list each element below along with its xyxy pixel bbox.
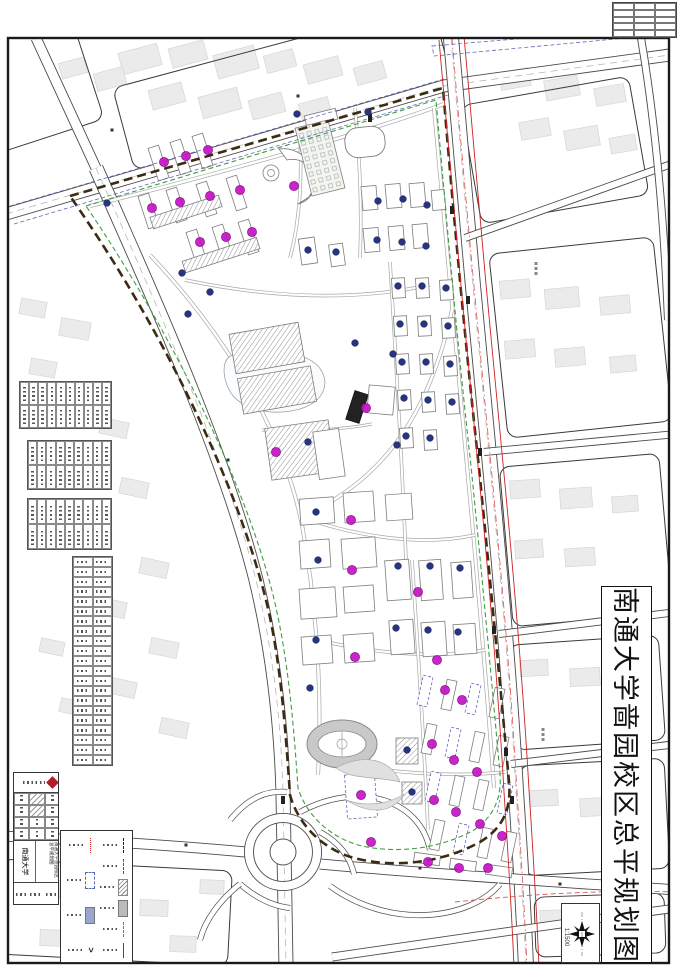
campus-building (473, 779, 489, 810)
magenta-marker-dot (195, 237, 204, 246)
map-mark (419, 867, 422, 870)
magenta-marker-dot (289, 181, 298, 190)
existing-building (148, 82, 186, 110)
project-title: 南通大学啬园校区总平规划图 (36, 841, 60, 882)
green-line-swatch (123, 922, 124, 937)
existing-building (198, 87, 242, 119)
drawing-title-strip: 南通大学啬园校区总平规划图 (601, 586, 652, 963)
blue-marker-dot (421, 321, 428, 328)
blue-marker-dot (419, 283, 426, 290)
existing-building (599, 295, 630, 316)
magenta-marker-dot (235, 185, 244, 194)
map-mark (297, 95, 300, 98)
gate (504, 748, 508, 756)
blue-marker-dot (399, 359, 406, 366)
blue-marker-dot (427, 563, 434, 570)
revision-cell (634, 10, 655, 17)
magenta-marker-dot (205, 191, 214, 200)
campus-building (385, 493, 413, 521)
blue-marker-dot (395, 283, 402, 290)
blue-marker-dot (427, 435, 434, 442)
magenta-marker-dot (449, 755, 458, 764)
blue-marker-dot (393, 625, 400, 632)
blue-marker-dot (313, 509, 320, 516)
blue-marker-dot (315, 557, 322, 564)
existing-building (564, 125, 601, 151)
blue-marker-dot (394, 442, 401, 449)
legend-item-existing-building (100, 898, 128, 918)
gate (492, 626, 496, 634)
magenta-marker-dot (271, 447, 280, 456)
legend-item-planned-building (100, 877, 128, 897)
blue-marker-dot (399, 239, 406, 246)
gate (510, 796, 514, 804)
magenta-marker-dot (350, 652, 359, 661)
revision-cell (634, 17, 655, 24)
legend-item-reserved-land (67, 870, 95, 890)
blue-marker-dot (307, 685, 314, 692)
magenta-marker-dot (451, 807, 460, 816)
existing-building (609, 134, 637, 154)
map-mark (227, 459, 230, 462)
campus-building (388, 225, 405, 250)
road-label-mark (535, 272, 538, 275)
revision-cell (613, 17, 634, 24)
legend-item-entrance: > (67, 940, 95, 960)
magenta-marker-dot (147, 203, 156, 212)
revision-cell (634, 3, 655, 10)
blue-marker-dot (207, 289, 214, 296)
campus-building (469, 731, 485, 762)
magenta-marker-dot (472, 767, 481, 776)
drawing-title: 南通大学啬园校区总平规划图 (608, 587, 647, 963)
existing-building (514, 539, 543, 559)
blue-marker-dot (333, 249, 340, 256)
blue-marker-dot (425, 397, 432, 404)
revision-cell (655, 23, 676, 30)
city-block (489, 237, 672, 438)
blue-marker-dot (179, 270, 186, 277)
existing-building (39, 638, 65, 657)
road-label-mark (542, 733, 545, 736)
revision-table (612, 2, 677, 38)
revision-cell (634, 30, 655, 37)
campus-building (299, 587, 337, 619)
map-mark (111, 129, 114, 132)
blue-marker-dot (404, 747, 411, 754)
magenta-marker-dot (247, 227, 256, 236)
blue-marker-dot (455, 629, 462, 636)
legend-item-campus-wall (100, 940, 128, 960)
legend-item-red-line (100, 856, 128, 876)
existing-building (504, 339, 535, 360)
blue-marker-dot (375, 198, 382, 205)
campus-building (421, 621, 447, 657)
campus-building (445, 727, 461, 758)
existing-building (303, 56, 343, 85)
reserved-land-swatch (85, 872, 95, 889)
magenta-marker-dot (440, 685, 449, 694)
campus-building (465, 683, 481, 714)
title-block-tail (14, 883, 59, 905)
pool-field (344, 125, 387, 159)
red-line (464, 36, 539, 967)
campus-building (343, 585, 375, 613)
blue-marker-dot (352, 340, 359, 347)
existing-building (509, 479, 540, 499)
blue-marker-dot (449, 399, 456, 406)
blue-marker-dot (401, 395, 408, 402)
existing-building (519, 118, 552, 141)
magenta-marker-dot (427, 739, 436, 748)
existing-building (200, 880, 224, 895)
existing-building (93, 66, 127, 91)
magenta-marker-dot (361, 403, 370, 412)
spiral-plaza (263, 165, 279, 181)
legend: > (60, 830, 133, 963)
existing-building (159, 717, 190, 738)
campus-building (477, 827, 493, 858)
road-label-mark (535, 267, 538, 270)
revision-cell (613, 23, 634, 30)
planned-building-swatch (118, 879, 128, 896)
magenta-marker-dot (181, 151, 190, 160)
magenta-marker-dot (346, 515, 355, 524)
existing-building-swatch (118, 900, 128, 917)
blue-marker-dot (423, 359, 430, 366)
blue-marker-dot (425, 627, 432, 634)
campus-building (385, 183, 402, 208)
existing-building (570, 667, 601, 687)
revision-cell (613, 30, 634, 37)
magenta-marker-dot (423, 857, 432, 866)
site-boundary-swatch (123, 838, 124, 853)
existing-building (611, 495, 638, 513)
water-swatch (85, 907, 95, 924)
magenta-marker-dot (454, 863, 463, 872)
magenta-marker-dot (366, 837, 375, 846)
existing-building (149, 637, 180, 658)
existing-building (594, 84, 627, 107)
existing-building (520, 659, 549, 676)
blue-planning-line (432, 30, 626, 56)
blue-planning-line (14, 95, 448, 224)
campus-building (449, 775, 465, 806)
blue-marker-dot (443, 285, 450, 292)
campus-wall-swatch (123, 943, 124, 958)
legend-row2: > (67, 835, 95, 960)
indicator-table-3 (27, 498, 112, 550)
campus-building (441, 679, 457, 710)
legend-row1 (100, 835, 128, 960)
existing-building (554, 347, 585, 368)
client-name: 南通大学 (14, 841, 36, 882)
revision-cell (655, 10, 676, 17)
title-block-names: 南通大学啬园校区总平规划图 南通大学 (14, 841, 59, 883)
magenta-marker-dot (457, 695, 466, 704)
existing-building (499, 279, 530, 300)
blue-marker-dot (305, 247, 312, 254)
existing-building (58, 57, 87, 79)
gate (478, 448, 482, 456)
title-block-stamp (14, 773, 59, 793)
revision-cell (613, 3, 634, 10)
magenta-marker-dot (483, 863, 492, 872)
blue-marker-dot (313, 637, 320, 644)
existing-building (118, 43, 162, 75)
magenta-marker-dot (159, 157, 168, 166)
existing-building (139, 557, 170, 578)
magenta-marker-dot (413, 587, 422, 596)
magenta-marker-dot (347, 565, 356, 574)
magenta-marker-dot (203, 145, 212, 154)
existing-building (140, 900, 169, 917)
existing-building (544, 287, 580, 310)
campus-building (389, 619, 415, 655)
blue-marker-dot (445, 323, 452, 330)
map-mark (559, 883, 562, 886)
blue-marker-dot (390, 351, 397, 358)
magenta-marker-dot (497, 831, 506, 840)
existing-building (213, 45, 260, 79)
institute-stamp-icon (46, 776, 59, 789)
revision-cell (655, 3, 676, 10)
drawing-sheet: { "sheet": { "title": "南通大学啬园校区总平规划图", "… (0, 0, 677, 967)
legend-item-site-boundary (100, 835, 128, 855)
formal-garden (295, 120, 345, 196)
revision-cell (655, 17, 676, 24)
campus-building (361, 185, 378, 210)
road-label-mark (542, 728, 545, 731)
title-block-fields (14, 793, 59, 841)
existing-building (353, 60, 387, 85)
magenta-marker-dot (429, 795, 438, 804)
existing-building (19, 298, 47, 318)
existing-building (170, 936, 197, 953)
blue-marker-dot (400, 196, 407, 203)
map-mark (185, 844, 188, 847)
blue-marker-dot (424, 202, 431, 209)
gate (450, 206, 454, 214)
scale-label: 1:1500 (563, 922, 569, 952)
blue-marker-dot (403, 433, 410, 440)
blue-marker-dot (294, 111, 301, 118)
campus-building (299, 539, 331, 569)
blue-marker-dot (397, 321, 404, 328)
existing-building (248, 92, 286, 120)
existing-building (29, 358, 57, 378)
existing-building (119, 477, 150, 498)
revision-cell (613, 10, 634, 17)
indicator-table-2 (27, 440, 112, 490)
legend-item-green-line (100, 919, 128, 939)
blue-marker-dot (185, 311, 192, 318)
north-arrow-box: 1:1500 (561, 903, 600, 963)
existing-building (263, 48, 297, 73)
road-label-mark (535, 262, 538, 265)
magenta-marker-dot (356, 790, 365, 799)
blue-marker-dot (457, 565, 464, 572)
magenta-marker-dot (221, 232, 230, 241)
revision-cell (634, 23, 655, 30)
magenta-marker-dot (432, 655, 441, 664)
existing-building (530, 789, 559, 806)
blue-marker-dot (423, 243, 430, 250)
road-label-mark (542, 738, 545, 741)
blue-marker-dot (447, 361, 454, 368)
indicator-table-4 (72, 556, 113, 766)
magenta-marker-dot (475, 819, 484, 828)
campus-building (341, 537, 377, 569)
campus-building (409, 182, 426, 207)
campus-building (367, 385, 395, 415)
blue-marker-dot (409, 789, 416, 796)
existing-building (609, 355, 636, 373)
blue-marker-dot (374, 237, 381, 244)
red-line-swatch (123, 859, 124, 874)
legend-item-water (67, 905, 95, 925)
title-block: 南通大学啬园校区总平规划图 南通大学 (13, 772, 59, 905)
gate (466, 296, 470, 304)
gate (281, 796, 285, 804)
entrance-swatch: > (87, 943, 95, 958)
existing-building (564, 547, 595, 567)
blue-marker-dot (305, 439, 312, 446)
blue-marker-dot (365, 109, 372, 116)
revision-cell (655, 30, 676, 37)
existing-building (559, 487, 592, 509)
legend-item-pipeline (67, 835, 95, 855)
existing-building (59, 318, 92, 341)
indicator-table-1 (19, 381, 112, 429)
blue-marker-dot (104, 200, 111, 207)
pipeline-swatch (90, 838, 91, 853)
magenta-marker-dot (175, 197, 184, 206)
campus-building (453, 623, 477, 654)
blue-marker-dot (395, 563, 402, 570)
